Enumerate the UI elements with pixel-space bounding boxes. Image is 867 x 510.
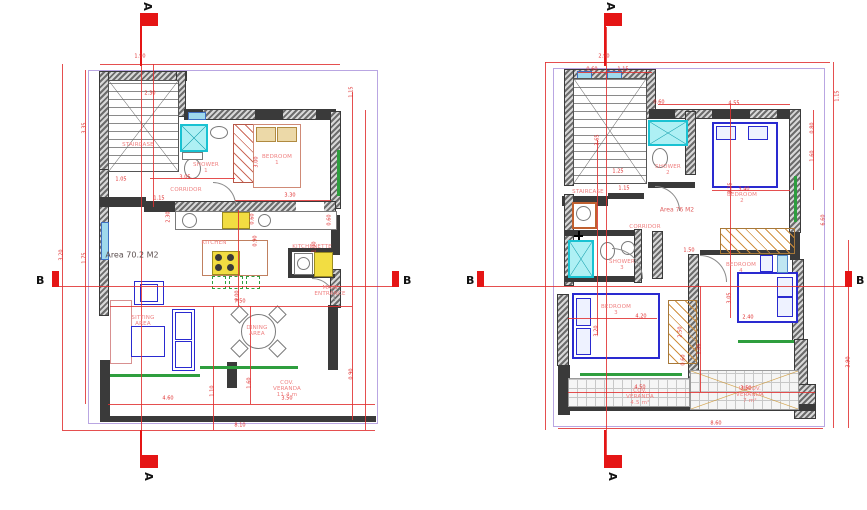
room-label: BEDROOM 4 (726, 262, 756, 274)
pillow (716, 126, 736, 140)
washer-drum (297, 257, 310, 270)
dimension-line (597, 140, 598, 335)
cook-pot (258, 214, 271, 227)
dim-label: 2.30 (167, 211, 172, 222)
shower-tray (180, 124, 208, 152)
sliding-door-green (110, 374, 200, 377)
section-flag-stem (604, 430, 606, 458)
room-label: BEDROOM 3 (601, 304, 631, 316)
dim-label: 3.00 (255, 156, 260, 167)
dim-label: 1.15 (350, 86, 355, 97)
dim-label: 0.90 (254, 235, 259, 246)
dimension-line (153, 64, 154, 207)
sofa-cushion (175, 341, 192, 368)
section-flag (604, 455, 622, 468)
wardrobe (720, 228, 795, 254)
room-label: SHOWER 2 (655, 164, 681, 176)
pillow (277, 127, 297, 142)
dim-label: 1.15 (618, 187, 629, 192)
room-label: SHOWER 3 (609, 259, 635, 271)
dim-label: 0.60 (653, 101, 664, 106)
wall-segment (100, 360, 110, 420)
dim-label: 3.50 (740, 387, 751, 392)
dim-label: 3.50 (281, 397, 292, 402)
nightstand (760, 255, 773, 272)
cook-pot (182, 213, 197, 228)
window (188, 112, 206, 120)
dim-label: 0.60 (682, 354, 687, 365)
dimension-line (110, 306, 352, 307)
wall-segment (653, 232, 662, 278)
dim-label: 1.25 (612, 170, 623, 175)
section-flag (52, 271, 59, 287)
dim-label: 2.50 (679, 326, 684, 337)
section-line-aa (141, 27, 142, 455)
dimension-line (235, 200, 331, 201)
area-label: Area 76 M2 (660, 207, 694, 214)
burner (227, 264, 234, 271)
dimension-line (558, 428, 823, 429)
section-flag (477, 271, 484, 287)
wall-segment (100, 72, 108, 172)
room-label: SITTING AREA (131, 315, 154, 327)
section-letter-a-bottom: A (606, 472, 619, 481)
pillow (777, 297, 793, 317)
dimension-line (700, 286, 701, 392)
pillow (777, 277, 793, 297)
room-label: DINING AREA (246, 325, 267, 337)
pillow (576, 298, 591, 326)
section-letter-a-top: A (141, 2, 154, 11)
tv-unit (110, 300, 132, 364)
dim-label: 3.35 (83, 122, 88, 133)
sliding-door-green (200, 366, 298, 369)
dim-label: 0.90 (350, 368, 355, 379)
section-flag (392, 271, 399, 287)
stool (229, 276, 243, 289)
wardrobe (233, 124, 255, 183)
room-label: CORRIDOR (629, 224, 660, 230)
dimension-line (658, 104, 790, 105)
window-green (794, 176, 797, 222)
kitchen-sink (222, 212, 250, 229)
dim-label: 0.80 (811, 122, 816, 133)
dim-label: 0.60 (328, 214, 333, 225)
section-line-aa (606, 27, 607, 455)
sofa-cushion (175, 312, 192, 340)
dim-label: 1.15 (836, 90, 841, 101)
dim-label: 1.00 (698, 343, 703, 354)
nightstand (777, 255, 788, 273)
dimension-line (62, 430, 375, 431)
burner (215, 254, 222, 261)
dim-label: 4.50 (634, 386, 645, 391)
toilet-cistern (182, 152, 203, 160)
pillow (256, 127, 276, 142)
dim-label: 4.20 (635, 315, 646, 320)
section-letter-b-right: B (856, 274, 864, 287)
dimension-line (545, 62, 830, 63)
dimension-line (62, 64, 63, 430)
dim-label: 1.10 (211, 385, 216, 396)
appliance (314, 252, 333, 277)
dim-label: 1.15 (153, 197, 164, 202)
wall-segment (100, 72, 186, 80)
dimension-line (545, 62, 546, 430)
section-letter-b-left: B (36, 274, 44, 287)
wall-segment (712, 110, 750, 118)
section-flag (604, 13, 622, 26)
dimension-line (833, 62, 834, 428)
room-label: BEDROOM 2 (727, 192, 757, 204)
wall-segment (650, 110, 675, 118)
dim-label: 8.60 (710, 422, 721, 427)
dim-label: 8.10 (234, 424, 245, 429)
dimension-line (712, 190, 790, 191)
room-label: COV. VERANDA 4.5 m² (626, 388, 654, 406)
room-label: KITCHEN (201, 240, 226, 246)
dimension-line (365, 110, 366, 430)
dim-label: 1.15 (617, 68, 628, 73)
dim-label: 1.50 (683, 249, 694, 254)
pillow (748, 126, 768, 140)
room-label: STAIRCASE (122, 142, 154, 148)
dimension-line (150, 178, 235, 179)
dimension-line (108, 404, 375, 405)
burner (215, 264, 222, 271)
dim-label: 1.75 (83, 252, 88, 263)
section-letter-a-top: A (604, 2, 617, 11)
floor-plan-drawing: A A B B Area 70.2 M2 STAIRCASESHOWER 1BE… (0, 0, 867, 510)
wall-segment (558, 295, 568, 365)
washer-drum (576, 206, 591, 221)
dim-label: 3.20 (595, 325, 600, 336)
dim-label: 3.05 (179, 176, 190, 181)
dim-label: 6.60 (822, 214, 827, 225)
dim-label: 1.90 (134, 55, 145, 60)
dim-label: 1.05 (115, 178, 126, 183)
section-flag (140, 13, 158, 26)
dim-label: 2.30 (144, 92, 155, 97)
section-line-bb (483, 286, 845, 287)
section-letter-b-right: B (403, 274, 411, 287)
dimension-line (250, 306, 251, 404)
stool (246, 276, 260, 289)
section-letter-b-left: B (466, 274, 474, 287)
dim-label: 1.00 (313, 241, 318, 252)
dim-label: 3.25 (729, 182, 734, 193)
washbasin (210, 126, 228, 139)
coffee-table (131, 326, 165, 357)
dim-label: 1.60 (248, 377, 253, 388)
room-label: MAIN ENTRANCE (314, 285, 345, 297)
dim-label: 3.90 (847, 356, 852, 367)
wall-segment (145, 202, 175, 211)
dim-label: 2.90 (598, 55, 609, 60)
kitchen-counter (175, 211, 337, 230)
room-label: SHOWER 1 (193, 162, 219, 174)
room-label: STAIRCASE (572, 189, 604, 195)
room-label: BEDROOM 1 (262, 154, 292, 166)
pillow (576, 328, 591, 355)
dim-label: 0.60 (586, 68, 597, 73)
section-flag-stem (140, 26, 142, 66)
stool (212, 276, 226, 289)
window-green (337, 150, 340, 196)
wall-segment (328, 305, 338, 370)
wall-segment (608, 193, 644, 199)
section-flag-stem (604, 26, 606, 66)
sliding-door-green (580, 373, 682, 376)
section-letter-a-bottom: A (142, 472, 155, 481)
dimension-line (848, 240, 849, 428)
dimension-line (85, 70, 86, 404)
door-opening (296, 202, 324, 211)
section-flag (845, 271, 852, 287)
dim-label: 7.50 (234, 300, 245, 305)
dim-label: 3.65 (596, 134, 601, 145)
dim-label: 4.60 (162, 397, 173, 402)
wall-segment (255, 110, 283, 119)
shower-tray (648, 120, 688, 146)
dimension-line (730, 104, 731, 318)
bathtub (568, 240, 594, 278)
section-flag (140, 455, 158, 468)
area-label: Area 70.2 M2 (105, 251, 158, 260)
dim-label: 3.05 (728, 292, 733, 303)
sliding-door-green (738, 340, 794, 343)
dim-label: 1.60 (811, 150, 816, 161)
dim-label: 4.55 (728, 102, 739, 107)
dimension-line (100, 64, 340, 65)
dim-label: 0.60 (251, 213, 256, 224)
wall-segment (565, 70, 573, 185)
burner (227, 254, 234, 261)
staircase (573, 78, 647, 184)
dim-label: 3.20 (60, 249, 65, 260)
dim-label: 3.40 (738, 188, 749, 193)
dim-label: 3.30 (284, 194, 295, 199)
wall-segment (100, 197, 146, 207)
dim-label: 2.40 (742, 316, 753, 321)
room-label: CORRIDOR (170, 187, 201, 193)
dimension-line (213, 306, 214, 430)
section-flag-stem (140, 430, 142, 458)
